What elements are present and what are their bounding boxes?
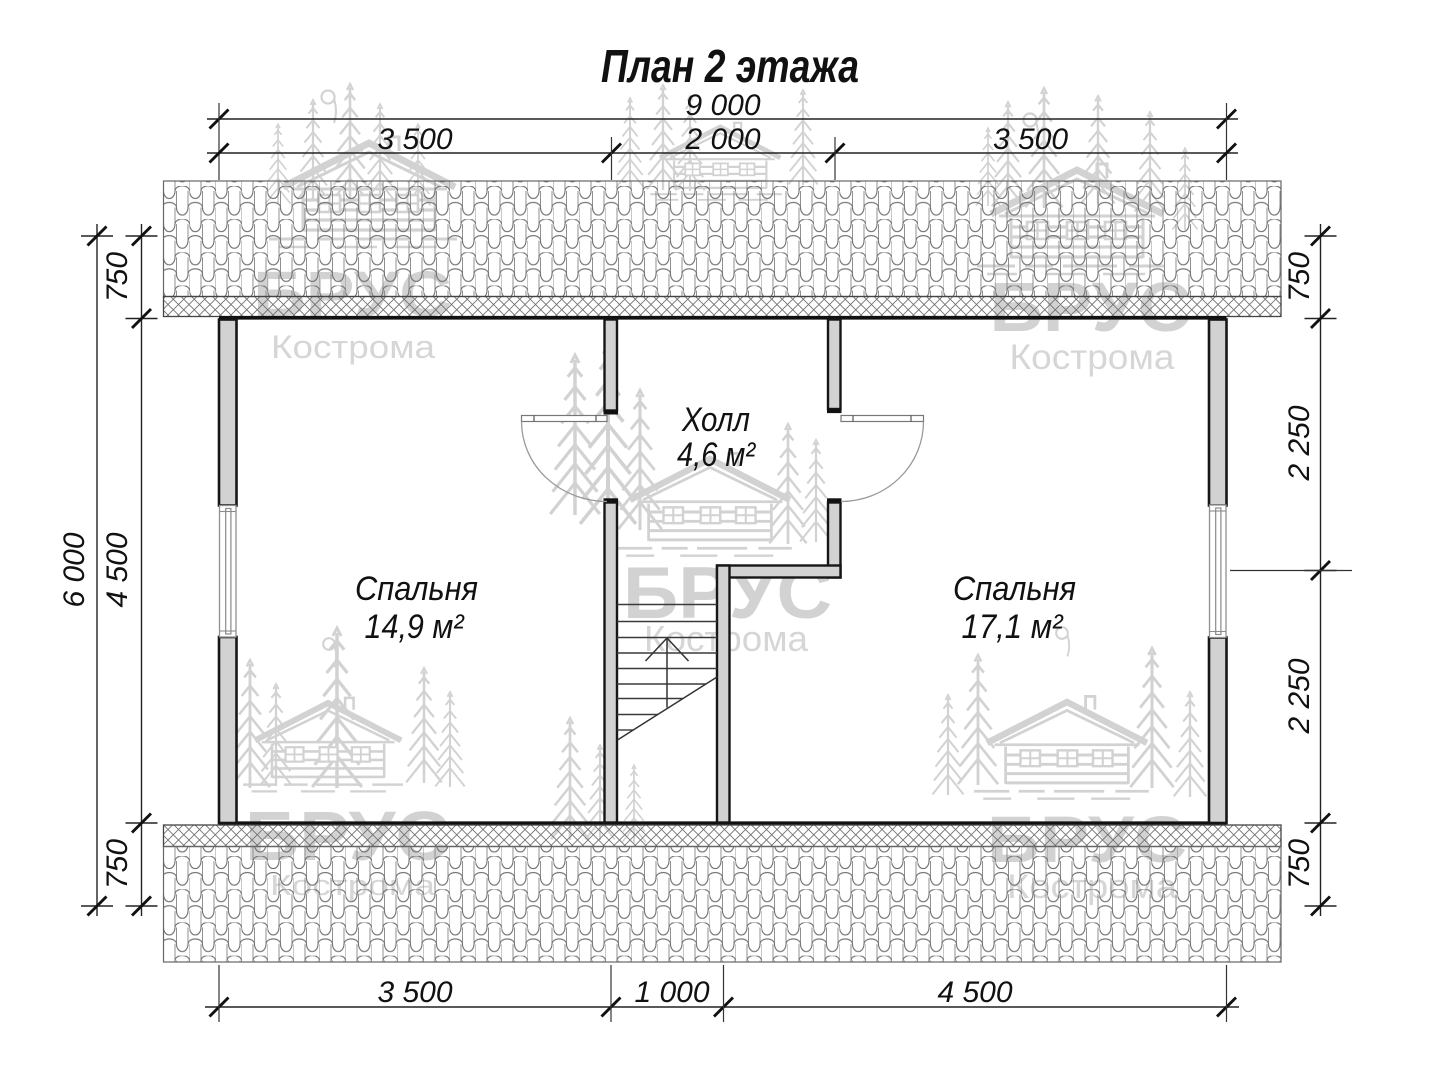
svg-text:Спальня: Спальня (355, 570, 478, 608)
svg-text:Спальня: Спальня (953, 570, 1076, 608)
svg-text:4 500: 4 500 (101, 532, 134, 607)
svg-text:750: 750 (101, 839, 134, 889)
svg-text:17,1 м²: 17,1 м² (962, 608, 1065, 646)
svg-text:1 000: 1 000 (634, 976, 709, 1009)
svg-text:2 000: 2 000 (684, 123, 760, 156)
svg-text:Холл: Холл (681, 401, 750, 439)
svg-text:3 500: 3 500 (993, 123, 1068, 156)
svg-text:6 000: 6 000 (58, 532, 91, 607)
svg-text:3 500: 3 500 (377, 976, 452, 1009)
svg-text:Кострома: Кострома (271, 329, 435, 365)
svg-text:2 250: 2 250 (1283, 658, 1316, 734)
svg-text:3 500: 3 500 (377, 123, 452, 156)
svg-text:9 000: 9 000 (685, 89, 760, 122)
svg-text:750: 750 (1283, 252, 1316, 302)
svg-text:4 500: 4 500 (937, 976, 1012, 1009)
svg-text:2 250: 2 250 (1283, 405, 1316, 481)
svg-text:Кострома: Кострома (1010, 338, 1176, 377)
svg-text:750: 750 (101, 252, 134, 302)
svg-text:750: 750 (1283, 839, 1316, 889)
svg-text:14,9 м²: 14,9 м² (365, 608, 465, 646)
svg-text:План 2 этажа: План 2 этажа (601, 40, 859, 92)
svg-text:4,6 м²: 4,6 м² (677, 436, 756, 474)
